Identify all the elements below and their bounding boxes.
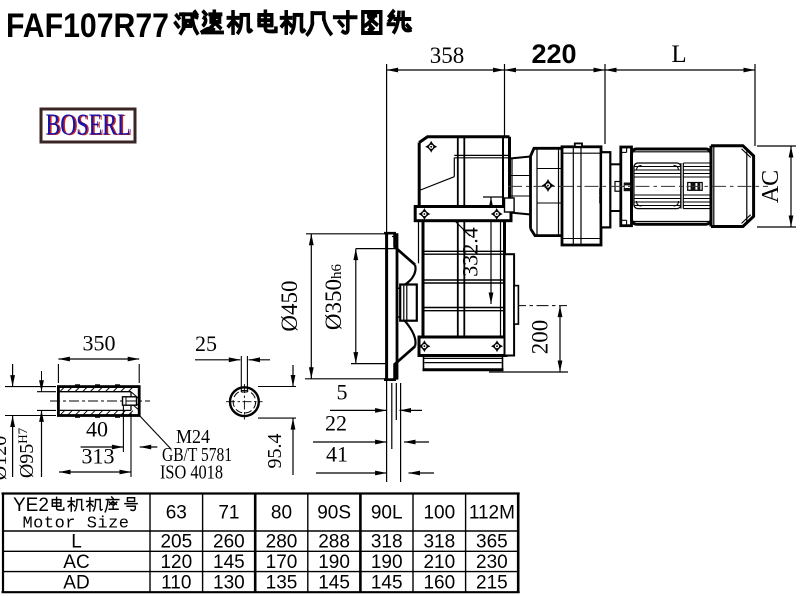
svg-text:112M: 112M (469, 503, 515, 524)
svg-text:41: 41 (326, 442, 348, 467)
svg-text:135: 135 (266, 572, 298, 593)
svg-text:90L: 90L (371, 503, 403, 524)
svg-text:22: 22 (325, 411, 347, 436)
svg-text:220: 220 (531, 39, 576, 69)
svg-text:350: 350 (83, 331, 116, 356)
svg-text:5: 5 (337, 380, 348, 405)
svg-text:AC: AC (63, 552, 89, 573)
svg-text:145: 145 (213, 552, 245, 573)
svg-text:100: 100 (423, 503, 455, 524)
svg-text:210: 210 (423, 552, 455, 573)
svg-text:Motor Size: Motor Size (22, 515, 129, 534)
svg-text:365: 365 (476, 532, 508, 553)
svg-text:200: 200 (528, 320, 553, 355)
svg-text:90S: 90S (317, 503, 351, 524)
svg-text:80: 80 (271, 503, 292, 524)
svg-text:280: 280 (266, 532, 298, 553)
svg-text:40: 40 (86, 417, 108, 442)
svg-text:170: 170 (266, 552, 298, 573)
svg-text:230: 230 (476, 552, 508, 573)
svg-text:260: 260 (213, 532, 245, 553)
svg-text:71: 71 (218, 503, 239, 524)
svg-text:AD: AD (63, 572, 89, 593)
svg-text:L: L (71, 532, 82, 553)
svg-text:145: 145 (371, 572, 403, 593)
svg-text:130: 130 (213, 572, 245, 593)
svg-text:145: 145 (318, 572, 350, 593)
svg-text:Ø450: Ø450 (277, 280, 302, 331)
svg-text:205: 205 (160, 532, 192, 553)
svg-text:120: 120 (160, 552, 192, 573)
svg-text:Ø120: Ø120 (0, 436, 11, 480)
svg-text:FAF107R77: FAF107R77 (6, 7, 169, 45)
svg-text:95.4: 95.4 (264, 434, 286, 469)
svg-text:215: 215 (476, 572, 508, 593)
svg-text:190: 190 (371, 552, 403, 573)
svg-text:318: 318 (371, 532, 403, 553)
svg-text:BOSERL: BOSERL (46, 108, 131, 142)
svg-text:ISO 4018: ISO 4018 (160, 462, 223, 484)
svg-text:288: 288 (318, 532, 350, 553)
svg-text:160: 160 (423, 572, 455, 593)
svg-text:63: 63 (166, 503, 187, 524)
svg-text:110: 110 (161, 572, 191, 593)
svg-text:25: 25 (195, 331, 217, 356)
svg-text:313: 313 (82, 444, 115, 469)
svg-text:358: 358 (430, 43, 465, 68)
svg-text:318: 318 (423, 532, 455, 553)
svg-text:YE2: YE2 (13, 495, 49, 516)
svg-text:AC: AC (758, 170, 784, 203)
svg-text:L: L (671, 41, 686, 68)
svg-text:190: 190 (318, 552, 350, 573)
